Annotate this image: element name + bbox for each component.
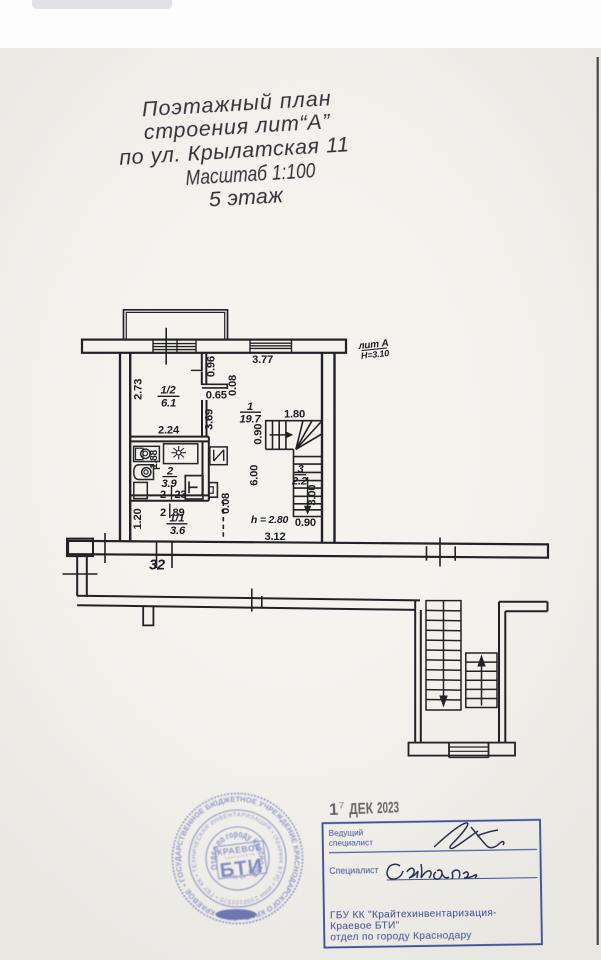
svg-text:3: 3 — [297, 464, 304, 476]
svg-text:3.12: 3.12 — [265, 531, 286, 543]
svg-text:1/1: 1/1 — [169, 513, 184, 525]
svg-text:h = 2.80: h = 2.80 — [251, 514, 289, 526]
svg-text:3.69: 3.69 — [204, 409, 216, 430]
svg-text:19.7: 19.7 — [240, 413, 262, 425]
svg-text:5 этаж: 5 этаж — [208, 183, 284, 211]
svg-text:7: 7 — [339, 800, 345, 811]
svg-text:1.88: 1.88 — [149, 449, 160, 469]
svg-text:1.20: 1.20 — [132, 509, 144, 530]
svg-text:2.73: 2.73 — [133, 379, 145, 400]
svg-text:0.90: 0.90 — [295, 517, 316, 529]
svg-text:23: 23 — [175, 489, 187, 501]
svg-text:2: 2 — [160, 507, 166, 519]
svg-text:3.00: 3.00 — [307, 485, 319, 506]
svg-text:0.90: 0.90 — [253, 424, 265, 445]
svg-text:2.2: 2.2 — [291, 476, 308, 488]
svg-text:3.77: 3.77 — [252, 354, 273, 366]
svg-text:0.65: 0.65 — [206, 390, 227, 402]
svg-text:2023: 2023 — [377, 799, 400, 817]
svg-text:32: 32 — [149, 558, 165, 574]
svg-text:1.80: 1.80 — [284, 409, 305, 421]
svg-text:специалист: специалист — [329, 838, 373, 848]
svg-text:2.24: 2.24 — [158, 425, 180, 437]
svg-text:1: 1 — [247, 401, 253, 413]
svg-text:1/2: 1/2 — [161, 385, 177, 397]
svg-text:2: 2 — [160, 489, 166, 501]
svg-text:отдел по городу Краснодару: отдел по городу Краснодару — [330, 930, 472, 943]
svg-text:Ведущий: Ведущий — [329, 828, 364, 838]
svg-text:0.08: 0.08 — [220, 493, 232, 514]
svg-text:0.96: 0.96 — [206, 356, 218, 377]
svg-text:ДЕК: ДЕК — [349, 800, 374, 818]
svg-text:1: 1 — [329, 801, 339, 819]
svg-text:3.6: 3.6 — [170, 525, 186, 537]
svg-text:0.08: 0.08 — [227, 375, 239, 396]
svg-text:Специалист: Специалист — [329, 865, 378, 876]
svg-text:2: 2 — [166, 466, 174, 478]
svg-text:6.00: 6.00 — [249, 465, 261, 486]
svg-text:6.1: 6.1 — [161, 398, 176, 410]
